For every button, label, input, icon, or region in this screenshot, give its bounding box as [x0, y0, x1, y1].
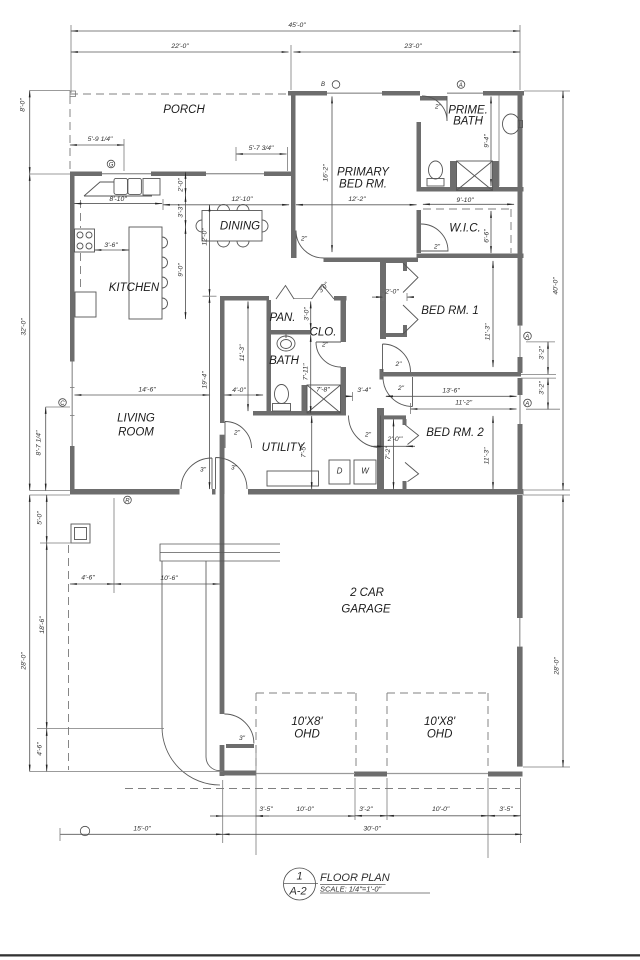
svg-text:OHD: OHD — [294, 729, 320, 741]
svg-text:11'-2": 11'-2" — [455, 400, 472, 407]
svg-text:10'-6": 10'-6" — [160, 575, 178, 582]
svg-text:40'-0": 40'-0" — [553, 277, 560, 295]
svg-text:1: 1 — [296, 871, 302, 883]
svg-text:3": 3" — [200, 467, 207, 474]
svg-text:30'-0": 30'-0" — [363, 826, 381, 833]
svg-text:6'-6": 6'-6" — [484, 229, 491, 243]
svg-text:23'-0": 23'-0" — [403, 43, 422, 50]
svg-text:CLO.: CLO. — [310, 327, 337, 339]
svg-text:ROOM: ROOM — [118, 427, 154, 439]
svg-text:18'-6": 18'-6" — [39, 616, 46, 634]
svg-text:GARAGE: GARAGE — [341, 604, 391, 616]
svg-text:2": 2" — [433, 244, 441, 251]
svg-text:11'-3": 11'-3" — [239, 344, 246, 361]
svg-text:4'-6": 4'-6" — [81, 575, 95, 582]
svg-text:28'-0": 28'-0" — [554, 657, 561, 676]
svg-text:SCALE: 1/4"=1'-0": SCALE: 1/4"=1'-0" — [320, 885, 382, 894]
svg-text:9'-4": 9'-4" — [484, 134, 491, 148]
svg-text:2": 2" — [300, 236, 308, 243]
svg-text:3": 3" — [239, 735, 246, 742]
svg-text:3'-2": 3'-2" — [359, 806, 373, 813]
svg-text:13'-6": 13'-6" — [442, 388, 460, 395]
svg-text:3'-3": 3'-3" — [178, 204, 185, 218]
svg-text:3'-6": 3'-6" — [104, 242, 118, 249]
svg-text:A-2: A-2 — [288, 886, 306, 898]
svg-text:28'-0": 28'-0" — [21, 652, 28, 671]
svg-text:7'-5": 7'-5" — [301, 444, 308, 458]
svg-text:BED RM. 2: BED RM. 2 — [426, 427, 484, 439]
svg-text:2": 2" — [397, 385, 405, 392]
svg-text:BED RM. 1: BED RM. 1 — [421, 305, 479, 317]
svg-text:5'-0": 5'-0" — [37, 511, 44, 525]
svg-text:3'-4": 3'-4" — [357, 387, 371, 394]
svg-text:OHD: OHD — [427, 729, 453, 741]
svg-text:LIVING: LIVING — [117, 413, 155, 425]
svg-text:4'-6": 4'-6" — [37, 742, 44, 756]
svg-text:DINING: DINING — [220, 221, 260, 233]
svg-text:A: A — [524, 334, 529, 340]
svg-text:4'-0": 4'-0" — [232, 387, 246, 394]
svg-text:A: A — [458, 83, 463, 89]
svg-text:5'-7 3/4": 5'-7 3/4" — [249, 145, 274, 152]
svg-text:2": 2" — [321, 342, 329, 349]
svg-text:8'-10": 8'-10" — [109, 196, 127, 203]
svg-text:R: R — [125, 498, 130, 504]
svg-text:10'X8': 10'X8' — [424, 716, 456, 728]
svg-text:3'-0": 3'-0" — [304, 307, 311, 321]
svg-text:PRIMARY: PRIMARY — [337, 167, 390, 179]
svg-text:2'-0": 2'-0" — [178, 178, 185, 193]
svg-text:G: G — [109, 162, 114, 168]
svg-text:10'-0": 10'-0" — [432, 806, 450, 813]
svg-text:14'-6": 14'-6" — [138, 387, 156, 394]
svg-text:32'-0": 32'-0" — [21, 318, 28, 336]
svg-text:10'-0": 10'-0" — [296, 806, 314, 813]
svg-text:C: C — [60, 401, 65, 407]
svg-text:D: D — [337, 467, 343, 476]
svg-text:2": 2" — [364, 432, 372, 439]
svg-text:7'-11": 7'-11" — [303, 363, 310, 380]
svg-text:KITCHEN: KITCHEN — [109, 282, 160, 294]
svg-text:7'-2": 7'-2" — [385, 446, 392, 460]
svg-text:16'-2": 16'-2" — [323, 164, 330, 182]
svg-text:3'-5": 3'-5" — [499, 806, 513, 813]
svg-text:2'-0"': 2'-0"' — [387, 436, 404, 443]
svg-text:15'-0": 15'-0" — [133, 826, 151, 833]
svg-text:11'-3": 11'-3" — [484, 447, 491, 464]
svg-text:BATH: BATH — [453, 116, 484, 128]
svg-text:45'-0": 45'-0" — [288, 22, 306, 29]
svg-text:12'-0": 12'-0" — [202, 228, 209, 246]
svg-text:11'-3": 11'-3" — [485, 323, 492, 340]
svg-text:12'-10": 12'-10" — [231, 196, 253, 203]
svg-text:8'-7 1/4": 8'-7 1/4" — [36, 430, 43, 455]
svg-text:FLOOR PLAN: FLOOR PLAN — [320, 872, 390, 884]
svg-text:3'-2": 3'-2" — [539, 381, 546, 395]
svg-text:3": 3" — [231, 465, 238, 472]
svg-text:3'-5": 3'-5" — [259, 806, 273, 813]
svg-text:10'X8': 10'X8' — [291, 716, 323, 728]
svg-text:2 CAR: 2 CAR — [349, 587, 384, 599]
svg-text:12'-2": 12'-2" — [348, 196, 366, 203]
svg-text:W.I.C.: W.I.C. — [449, 223, 481, 235]
svg-text:PAN.: PAN. — [270, 312, 296, 324]
svg-text:A: A — [524, 401, 529, 407]
svg-text:2": 2" — [434, 104, 442, 111]
svg-text:9'-0": 9'-0" — [178, 263, 185, 277]
svg-text:BED RM.: BED RM. — [339, 179, 387, 191]
svg-text:3'-2": 3'-2" — [539, 346, 546, 360]
svg-text:2": 2" — [233, 430, 241, 437]
svg-text:22'-0": 22'-0" — [170, 43, 189, 50]
svg-text:PORCH: PORCH — [163, 104, 205, 116]
svg-text:B: B — [321, 82, 325, 88]
svg-text:19'-4": 19'-4" — [202, 371, 209, 389]
svg-text:UTILITY: UTILITY — [262, 442, 306, 454]
svg-text:9'-10": 9'-10" — [456, 197, 474, 204]
svg-text:5'-9 1/4": 5'-9 1/4" — [88, 136, 113, 143]
svg-text:7'-8": 7'-8" — [316, 387, 330, 394]
svg-text:BATH: BATH — [269, 355, 300, 367]
svg-text:2": 2" — [395, 361, 403, 368]
svg-text:8'-0": 8'-0" — [20, 98, 27, 112]
svg-text:2'-0": 2'-0" — [384, 289, 399, 296]
